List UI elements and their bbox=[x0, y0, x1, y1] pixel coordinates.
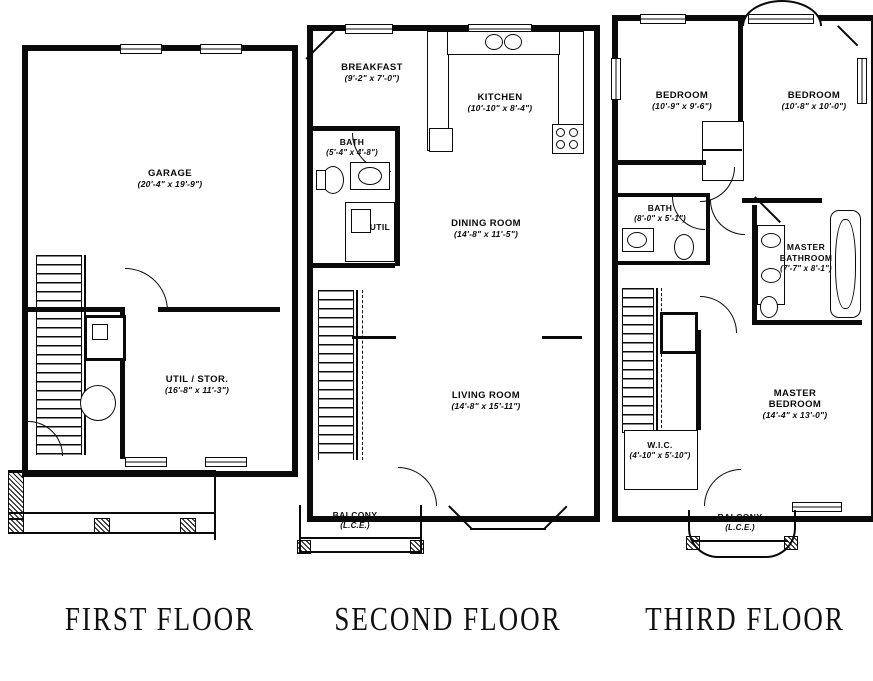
room-name: BEDROOM bbox=[652, 90, 712, 101]
window bbox=[857, 58, 867, 104]
living-room-label: LIVING ROOM (14'-8" x 15'-11") bbox=[452, 390, 521, 411]
room-name: GARAGE bbox=[138, 168, 203, 179]
room-name: KITCHEN bbox=[468, 92, 533, 103]
interior-wall bbox=[618, 261, 710, 265]
second-floor-title: SECOND FLOOR bbox=[334, 600, 561, 639]
window bbox=[611, 58, 621, 100]
closet-divider bbox=[702, 149, 742, 151]
staircase bbox=[622, 288, 654, 433]
master-bathroom-label: MASTER BATHROOM (7'-7" x 8'-1") bbox=[780, 242, 833, 274]
kitchen-label: KITCHEN (10'-10" x 8'-4") bbox=[468, 92, 533, 113]
interior-wall bbox=[706, 193, 710, 265]
interior-wall bbox=[738, 21, 743, 121]
room-dims: (L.C.E.) bbox=[333, 521, 378, 531]
room-dims: (L.C.E.) bbox=[718, 523, 763, 533]
balcony-post bbox=[784, 536, 798, 550]
garage-label: GARAGE (20'-4" x 19'-9") bbox=[138, 168, 203, 189]
sink-icon bbox=[627, 232, 647, 248]
room-dims: (7'-7" x 8'-1") bbox=[780, 264, 833, 274]
room-name: BEDROOM bbox=[782, 90, 847, 101]
sink-icon bbox=[761, 233, 781, 248]
toilet-icon bbox=[760, 296, 778, 318]
third-floor-plan: BEDROOM (10'-9" x 9'-6") BEDROOM (10'-8"… bbox=[0, 0, 873, 681]
first-floor-title: FIRST FLOOR bbox=[65, 600, 255, 639]
balcony-post bbox=[686, 536, 700, 550]
stair-rail bbox=[656, 288, 658, 433]
room-dims: (16'-8" x 11'-3") bbox=[165, 385, 229, 395]
balcony-rail bbox=[692, 540, 788, 542]
room-dims: (14'-8" x 15'-11") bbox=[452, 401, 521, 411]
interior-wall bbox=[742, 198, 822, 203]
room-name: BREAKFAST bbox=[341, 62, 403, 73]
bath-label: BATH (5'-4" x 4'-8") bbox=[326, 137, 378, 158]
room-dims: (5'-4" x 4'-8") bbox=[326, 148, 378, 158]
master-bedroom-label: MASTER BEDROOM (14'-4" x 13'-0") bbox=[763, 388, 828, 420]
room-dims: (10'-9" x 9'-6") bbox=[652, 101, 712, 111]
bathtub-basin bbox=[835, 219, 856, 309]
room-name: BATH bbox=[326, 137, 378, 148]
interior-wall bbox=[752, 320, 862, 325]
window bbox=[748, 14, 814, 24]
room-name: BATHROOM bbox=[780, 253, 833, 264]
dining-room-label: DINING ROOM (14'-8" x 11'-5") bbox=[451, 218, 521, 239]
room-name: LIVING ROOM bbox=[452, 390, 521, 401]
room-dims: (14'-8" x 11'-5") bbox=[451, 229, 521, 239]
room-name: UTIL / STOR. bbox=[165, 374, 229, 385]
floor-plan-sheet: GARAGE (20'-4" x 19'-9") UTIL / STOR. (1… bbox=[0, 0, 873, 681]
room-dims: (4'-10" x 5'-10") bbox=[629, 451, 690, 461]
toilet-icon bbox=[674, 234, 694, 260]
sink-icon bbox=[761, 268, 781, 283]
shaft-closet bbox=[660, 312, 698, 354]
room-name: BALCONY bbox=[718, 512, 763, 523]
room-name: UTIL bbox=[370, 222, 390, 233]
room-dims: (14'-4" x 13'-0") bbox=[763, 410, 828, 420]
room-dims: (8'-0" x 5'-1") bbox=[634, 214, 686, 224]
room-dims: (10'-10" x 8'-4") bbox=[468, 103, 533, 113]
interior-wall bbox=[618, 160, 706, 165]
bedroom-1-label: BEDROOM (10'-9" x 9'-6") bbox=[652, 90, 712, 111]
room-name: BATH bbox=[634, 203, 686, 214]
window bbox=[792, 502, 842, 512]
bath-label: BATH (8'-0" x 5'-1") bbox=[634, 203, 686, 224]
room-name: BEDROOM bbox=[763, 399, 828, 410]
window bbox=[640, 14, 686, 24]
util-label: UTIL bbox=[370, 222, 390, 233]
interior-wall bbox=[696, 330, 701, 430]
stair-rail-dashed bbox=[661, 288, 662, 433]
third-floor-title: THIRD FLOOR bbox=[645, 600, 845, 639]
util-stor-label: UTIL / STOR. (16'-8" x 11'-3") bbox=[165, 374, 229, 395]
balcony-label: BALCONY (L.C.E.) bbox=[333, 510, 378, 531]
room-dims: (9'-2" x 7'-0") bbox=[341, 73, 403, 83]
room-dims: (20'-4" x 19'-9") bbox=[138, 179, 203, 189]
room-dims: (10'-8" x 10'-0") bbox=[782, 101, 847, 111]
room-name: MASTER bbox=[780, 242, 833, 253]
room-name: BALCONY bbox=[333, 510, 378, 521]
wic-label: W.I.C. (4'-10" x 5'-10") bbox=[629, 440, 690, 461]
bedroom-2-label: BEDROOM (10'-8" x 10'-0") bbox=[782, 90, 847, 111]
balcony-label: BALCONY (L.C.E.) bbox=[718, 512, 763, 533]
room-name: MASTER bbox=[763, 388, 828, 399]
room-name: W.I.C. bbox=[629, 440, 690, 451]
breakfast-label: BREAKFAST (9'-2" x 7'-0") bbox=[341, 62, 403, 83]
room-name: DINING ROOM bbox=[451, 218, 521, 229]
